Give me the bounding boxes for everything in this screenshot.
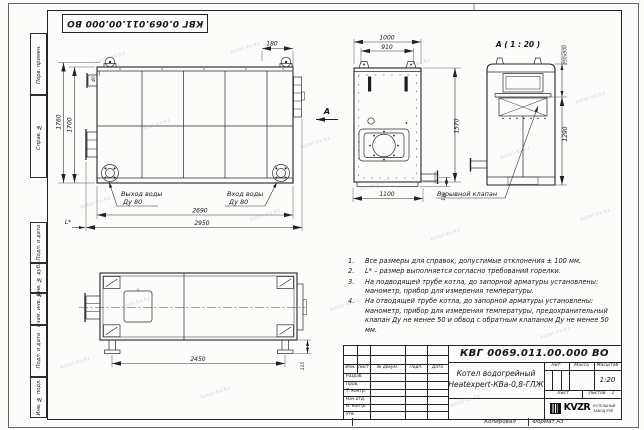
top-slot <box>405 77 408 92</box>
company-name: КОТЕЛЬНЫЙ ЗАВОД РЭП <box>593 404 615 413</box>
format-label: Формат А3 <box>520 419 576 425</box>
tb-line <box>370 346 371 419</box>
note-number: 2. <box>344 267 365 276</box>
dim-2450: 2450 <box>190 356 205 363</box>
sheet-label: Лист <box>544 390 582 398</box>
inlet-label: Вход воды <box>227 190 263 198</box>
scale-value: 1:20 <box>594 370 621 390</box>
lifting-lug <box>104 57 116 67</box>
role-nkontr: Н. контр. <box>344 404 370 411</box>
role-utv: Утв. <box>344 411 370 419</box>
sheets-value: 1 <box>612 391 615 396</box>
drain-stub <box>471 158 488 172</box>
dim-1760: 1760 <box>56 114 63 129</box>
role-prov: Пров. <box>344 381 370 389</box>
note-item: 4. На отводящей трубе котла, до запорной… <box>344 297 620 334</box>
col-podp: Подп. <box>405 364 427 373</box>
lit-header: Лит. <box>544 362 569 370</box>
dim-2690: 2690 <box>192 208 207 215</box>
sight-port <box>368 118 374 124</box>
lifting-lug <box>280 57 292 67</box>
technical-notes: 1. Все размеры для справок, допустимые о… <box>344 257 620 336</box>
dim-1700: 1700 <box>67 117 74 132</box>
burner-opening <box>373 134 396 157</box>
corner-lug-plate <box>277 277 294 289</box>
company-name-line2: ЗАВОД РЭП <box>593 409 615 413</box>
water-outlet-flange <box>102 165 119 182</box>
flue-connection <box>294 77 305 117</box>
note-text: Все размеры для справок, допустимые откл… <box>365 257 620 266</box>
detail-title: А ( 1 : 20 ) <box>495 40 540 49</box>
dim-1100: 1100 <box>379 191 394 198</box>
dim-250x500: 250х500 <box>563 45 569 65</box>
sheets-label: Листов <box>588 391 605 396</box>
tb-line <box>561 370 562 390</box>
corner-lug-plate <box>104 325 121 337</box>
base-skid <box>357 182 418 187</box>
flue-plate-top <box>297 284 303 330</box>
title-block: КВГ 0069.011.00.000 ВО Котел водогрейный… <box>343 345 622 420</box>
sheets-cell: Листов 1 <box>582 390 621 398</box>
dim-910: 910 <box>381 44 393 51</box>
note-text: L* – размер выполняется согласно требова… <box>365 267 620 276</box>
product-name: Котел водогрейный Heatexpert-КВа-0,8-ГЛЖ <box>448 362 544 398</box>
dim-40: 40 <box>91 76 97 82</box>
dim-1570: 1570 <box>454 118 461 133</box>
view-top: 2450 115 <box>79 273 311 370</box>
tb-line <box>344 355 448 356</box>
note-text: На подводящей трубе котла, до запорной а… <box>365 278 620 297</box>
footer-divider <box>352 418 353 426</box>
col-izm: Изм. <box>344 364 357 373</box>
scale-header: Масштаб <box>594 362 621 370</box>
dim-1000: 1000 <box>379 35 394 42</box>
support-foot <box>105 340 121 354</box>
col-list: Лист <box>357 364 370 373</box>
mass-header: Масса <box>569 362 594 370</box>
water-inlet-flange <box>273 165 290 182</box>
dim-2950: 2950 <box>194 220 209 227</box>
explosion-valve-label: Взрывной клапан <box>437 190 497 198</box>
boiler-body-front <box>354 68 421 182</box>
note-item: 2. L* – размер выполняется согласно треб… <box>344 267 620 276</box>
kvzr-logo-icon <box>550 403 561 414</box>
outlet-label: Выход воды <box>121 190 162 198</box>
view-front: 1000 910 1570 1100 115 А <box>316 35 461 203</box>
doc-number: КВГ 0069.011.00.000 ВО <box>448 346 621 362</box>
corner-lug-plate <box>104 277 121 289</box>
product-name-line1: Котел водогрейный <box>457 370 536 379</box>
note-number: 3. <box>344 278 365 297</box>
view-side: 180 1760 1700 40 2690 2950 L* Выход воды… <box>56 41 305 232</box>
top-slot <box>368 77 371 92</box>
dim-l-star: L* <box>65 219 71 226</box>
service-hatch <box>124 291 152 322</box>
col-data: Дата <box>427 364 448 373</box>
tb-line <box>405 346 406 419</box>
view-arrow-label: А <box>323 107 330 116</box>
inlet-dn-label: Ду 80 <box>228 198 248 206</box>
note-item: 1. Все размеры для справок, допустимые о… <box>344 257 620 266</box>
tb-line <box>552 370 553 390</box>
lifting-lug <box>496 58 504 64</box>
company-logo-cell: KVZR КОТЕЛЬНЫЙ ЗАВОД РЭП <box>544 398 621 419</box>
tb-line <box>427 346 428 419</box>
role-tkontr: Т. контр. <box>344 389 370 396</box>
role-nachotd: Нач.отд. <box>344 396 370 404</box>
boiler-body-rear <box>487 64 555 185</box>
dim-1290: 1290 <box>562 126 569 141</box>
corner-lug-plate <box>277 325 294 337</box>
dim-115-top: 115 <box>300 362 306 371</box>
note-text: На отводящей трубе котла, до запорной ар… <box>365 297 620 334</box>
burner-flange-side <box>86 129 97 160</box>
note-number: 1. <box>344 257 365 266</box>
note-item: 3. На подводящей трубе котла, до запорно… <box>344 278 620 297</box>
drawing-sheet: kotel-kv.kz kotel-kv.kz kotel-kv.kz kote… <box>0 0 644 430</box>
col-docnum: № докум. <box>370 364 405 373</box>
boiler-body-side <box>97 67 293 183</box>
boiler-body-top <box>100 273 297 340</box>
kvzr-logo-text: KVZR <box>564 403 591 414</box>
dim-180: 180 <box>266 41 278 48</box>
outlet-dn-label: Ду 80 <box>122 198 142 206</box>
burner-mounting-plate <box>359 129 409 161</box>
product-name-line2: Heatexpert-КВа-0,8-ГЛЖ <box>448 381 543 390</box>
role-razrab: Разраб. <box>344 373 370 381</box>
note-number: 4. <box>344 297 365 334</box>
support-foot <box>278 340 294 354</box>
lifting-lug <box>534 58 542 64</box>
